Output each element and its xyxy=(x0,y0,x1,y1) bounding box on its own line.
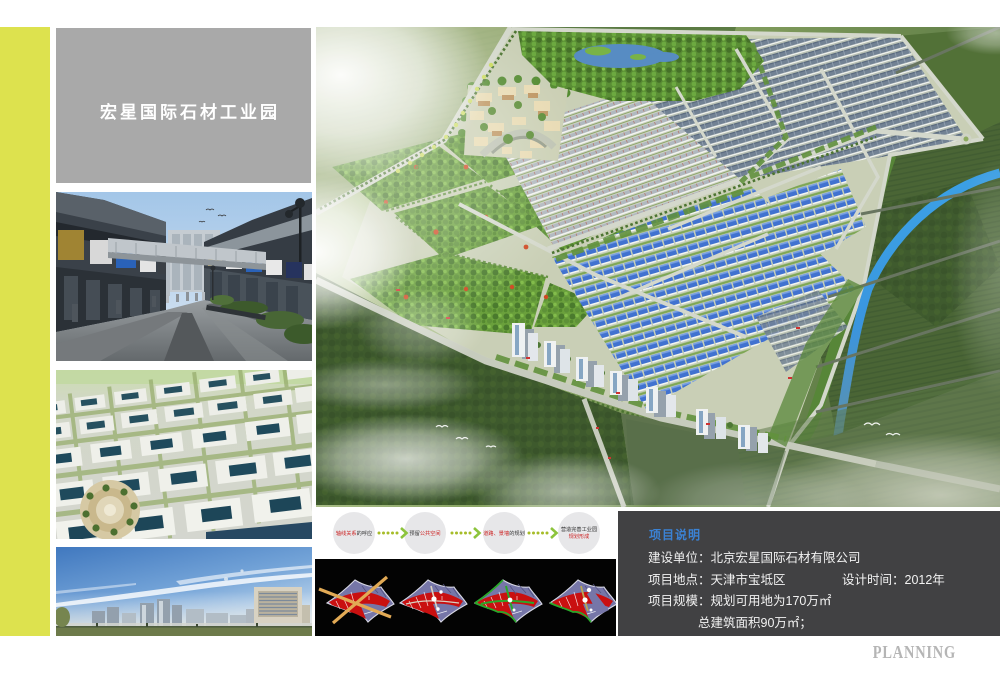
svg-text:规划形成: 规划形成 xyxy=(569,532,590,540)
svg-text:道路、景墙的规划: 道路、景墙的规划 xyxy=(483,529,525,537)
svg-text:轴线关系的呼应: 轴线关系的呼应 xyxy=(336,529,372,537)
svg-text:营造完善工业园: 营造完善工业园 xyxy=(561,525,597,533)
svg-text:预留公共空间: 预留公共空间 xyxy=(409,529,440,537)
